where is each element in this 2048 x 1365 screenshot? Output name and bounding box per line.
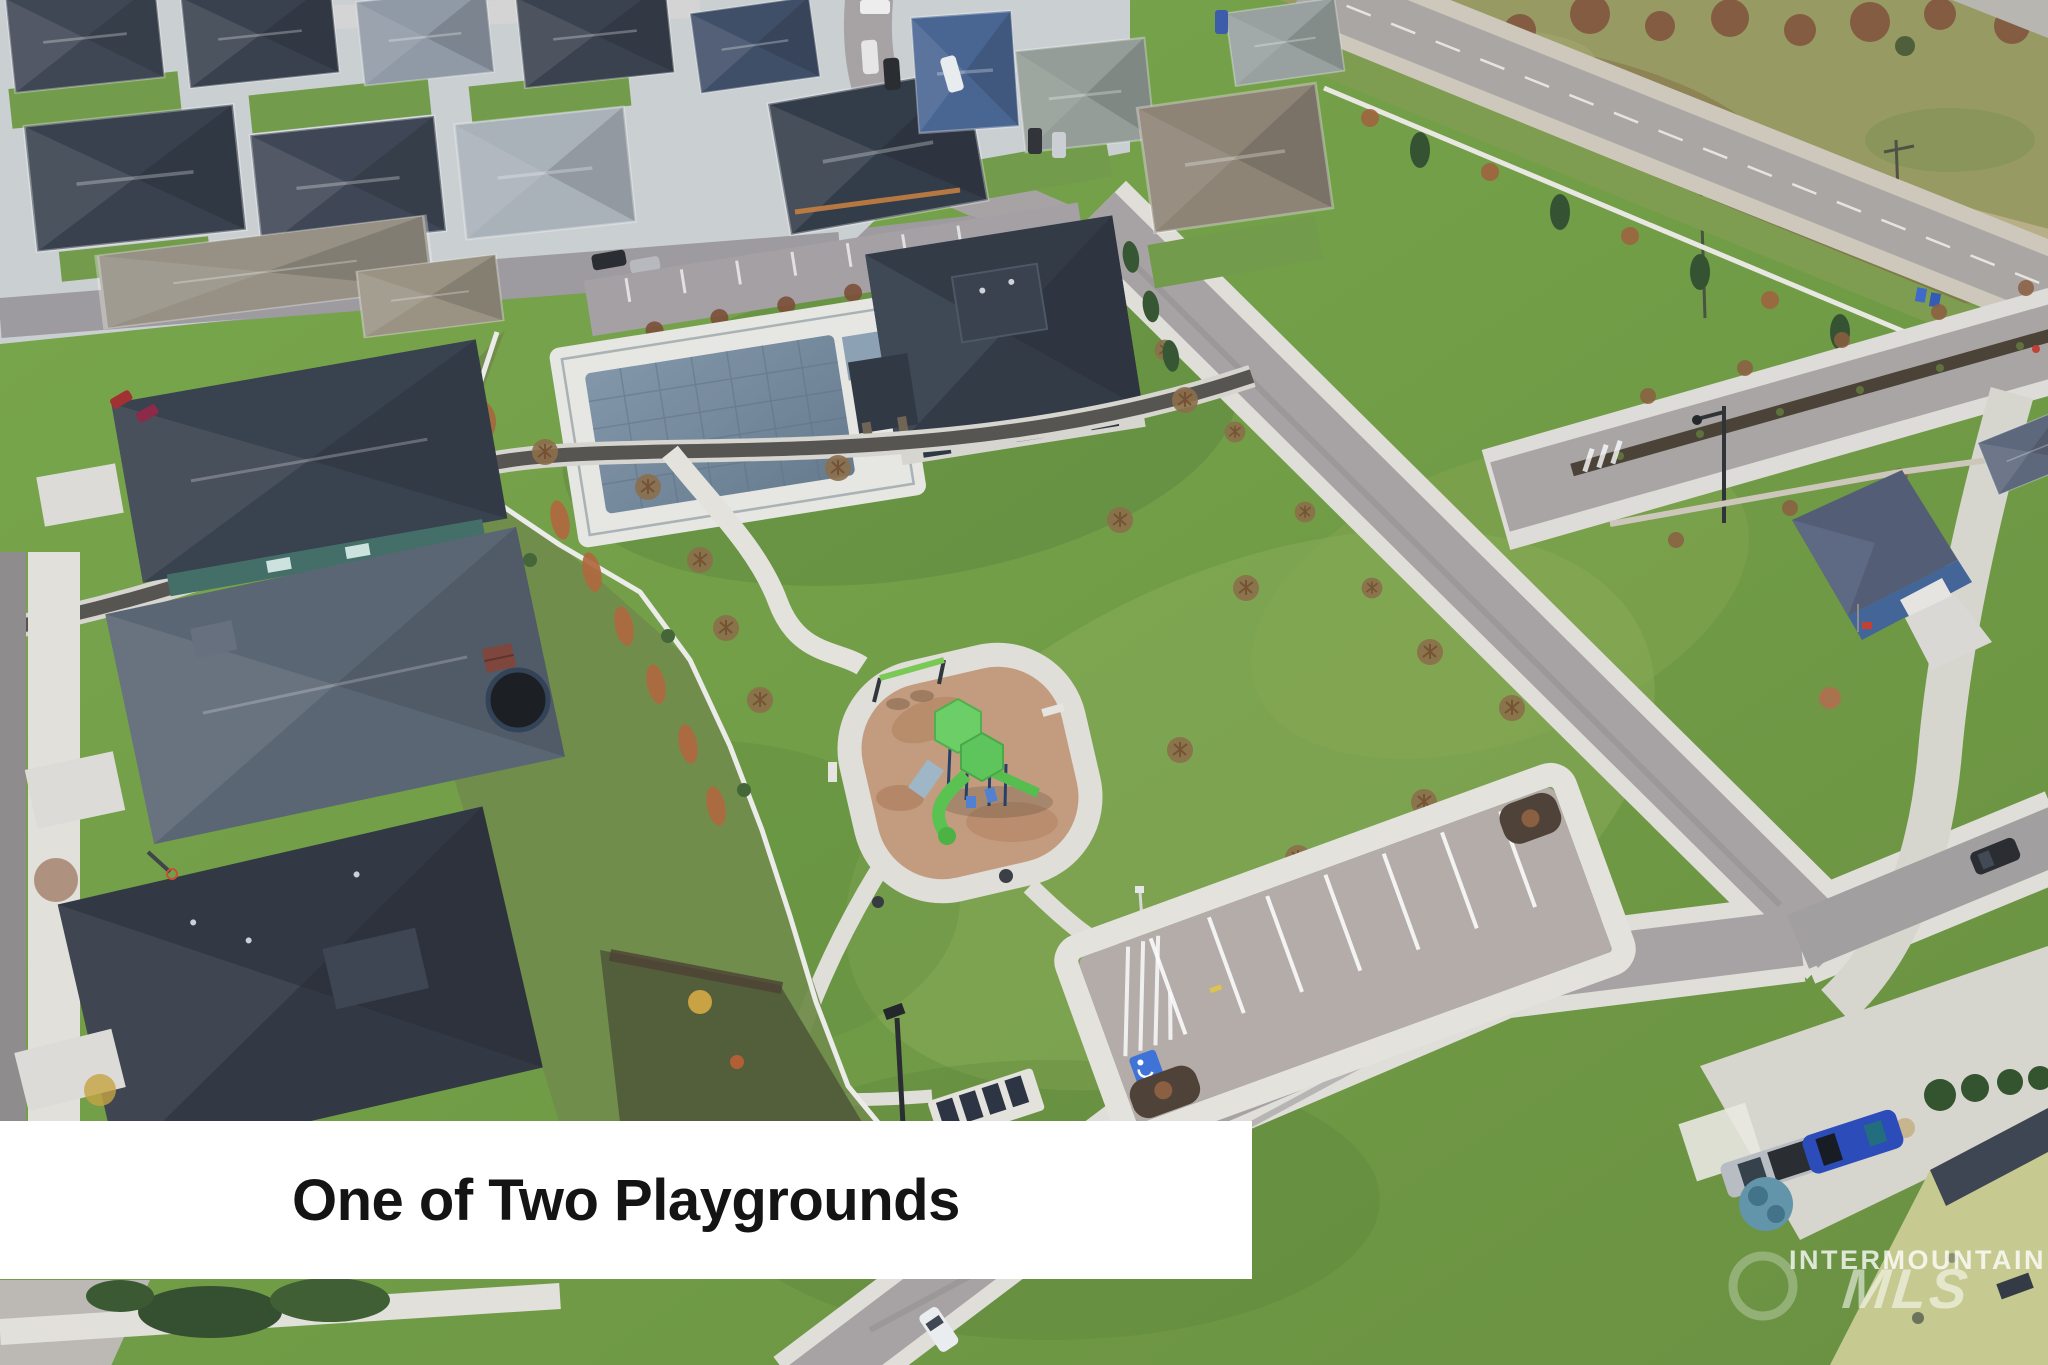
- caption-banner: One of Two Playgrounds: [0, 1121, 1252, 1279]
- caption-text: One of Two Playgrounds: [292, 1167, 960, 1234]
- real-estate-listing-photo: One of Two Playgrounds INTERMOUNTAIN MLS: [0, 0, 2048, 1365]
